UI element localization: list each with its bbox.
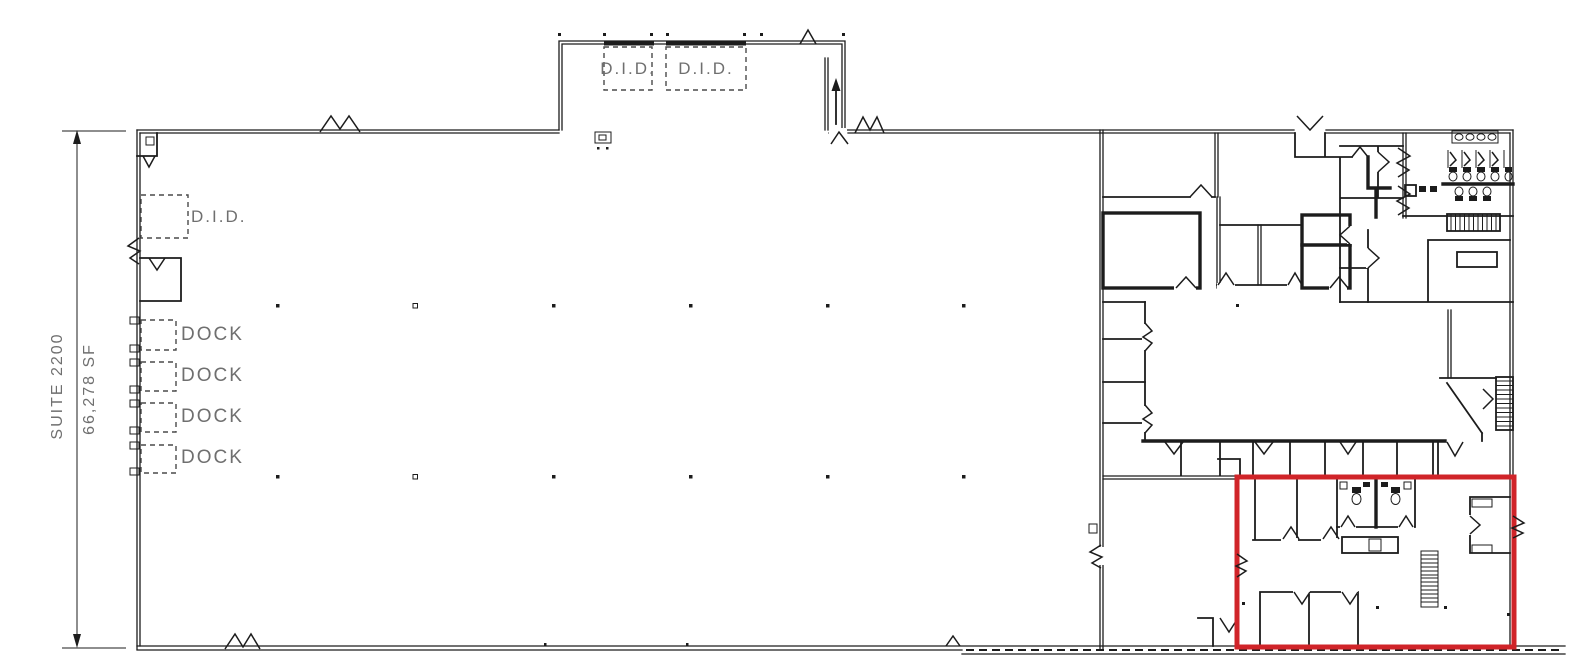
toilet-icons-row1 <box>1449 167 1512 181</box>
dock-label-2: DOCK <box>181 365 244 387</box>
building-outline <box>137 130 1565 654</box>
up-arrow-icon <box>832 78 841 124</box>
dock-door-1 <box>141 320 176 350</box>
toilet-icons-row2 <box>1455 187 1491 201</box>
loading-vestibule-walls <box>558 33 848 150</box>
wall-break-marks <box>128 30 1106 649</box>
restroom-fixtures <box>1405 131 1512 201</box>
dock-label-1: DOCK <box>181 324 244 346</box>
dock-door-3 <box>141 403 176 432</box>
office-partition-walls <box>1089 116 1513 649</box>
column-grid-dots <box>276 304 1239 646</box>
toilet-stall-partitions <box>1448 150 1504 168</box>
suite-number-label: SUITE 2200 <box>49 332 67 439</box>
dimension-arrow-top-icon <box>73 130 81 144</box>
wall-tick-dots <box>558 33 845 36</box>
door-fixture-icon <box>595 132 611 150</box>
urinal-icons <box>1419 186 1437 192</box>
did-label-top-2: D.I.D. <box>678 59 733 79</box>
did-label-side: D.I.D. <box>191 207 246 227</box>
warehouse-details <box>137 133 1239 646</box>
dock-label-4: DOCK <box>181 447 244 469</box>
did-label-top-1: D.I.D. <box>600 59 655 79</box>
dimension-arrow-bottom-icon <box>73 634 81 648</box>
dock-door-4 <box>141 445 176 473</box>
suite-area-label: 66,278 SF <box>81 343 99 435</box>
ladder-icon <box>1421 551 1438 607</box>
did-box-side <box>141 195 188 238</box>
furniture <box>1457 252 1497 267</box>
dock-door-2 <box>141 362 176 391</box>
floor-plan-page: SUITE 2200 66,278 SF D.I.D. D.I.D. D.I.D… <box>0 0 1578 658</box>
wall-fixture-icon <box>1089 524 1097 533</box>
table-icon <box>1457 252 1497 267</box>
dock-label-3: DOCK <box>181 406 244 428</box>
